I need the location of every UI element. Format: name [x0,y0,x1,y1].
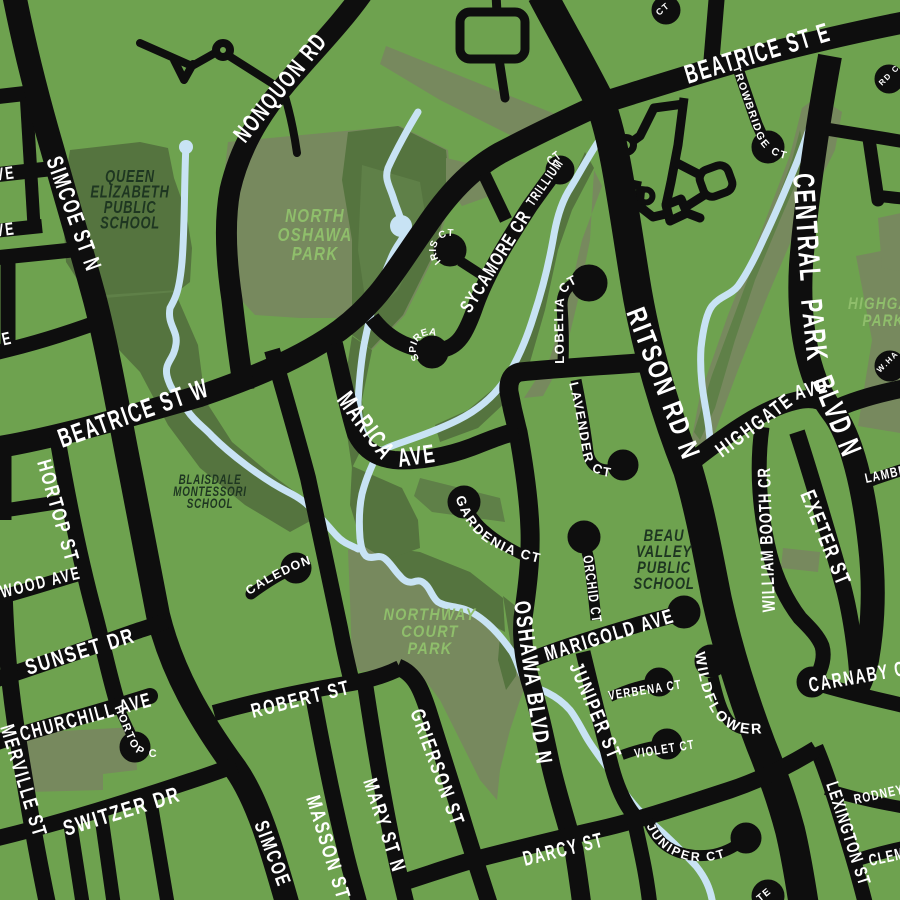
svg-text:AVE: AVE [0,219,17,242]
svg-text:PARK: PARK [794,297,833,363]
svg-text:AVE: AVE [0,163,17,186]
svg-text:AVE: AVE [396,438,438,473]
